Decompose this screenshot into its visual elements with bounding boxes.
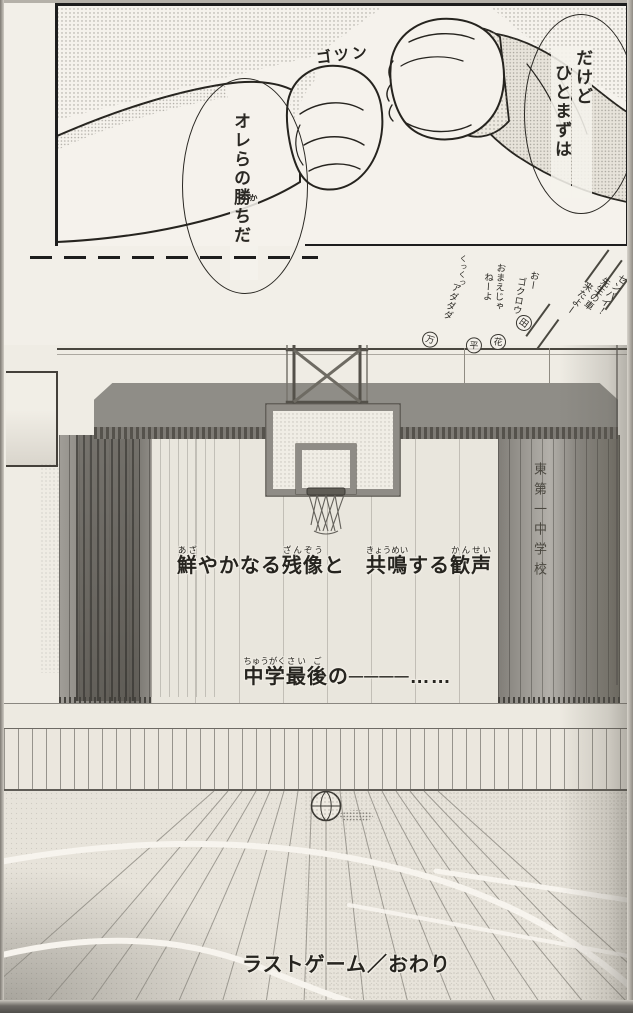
panel-border-dashed <box>30 256 318 259</box>
manga-page: 東第一中学校 鮮あざやかなる残像ざんぞうと 共鳴きょうめいする歓声かんせい 中学… <box>0 0 633 1013</box>
page-edge-right <box>627 0 633 1013</box>
hoop-truss <box>287 345 367 407</box>
caption-afterimage: 鮮あざやかなる残像ざんぞうと 共鳴きょうめいする歓声かんせい <box>18 545 633 578</box>
chatter-laugh: くっくっ <box>457 254 467 286</box>
speech-bubble-right-text: だけどひとまずは <box>550 48 593 198</box>
court-lines <box>4 844 629 1003</box>
page-edge-bottom <box>0 1000 633 1013</box>
chatter-senpai: センパイ！先生の車来たよー 田 <box>520 241 629 358</box>
panel-border-top <box>55 3 629 6</box>
page-curl-shading <box>559 345 629 1003</box>
speech-bubble-left-text: オレらの勝かちだ <box>230 112 258 280</box>
right-fist <box>387 19 504 140</box>
panel-border-bottom <box>305 244 629 246</box>
ending-caption: ラストゲーム／おわり <box>30 948 633 977</box>
caption-final: 中学ちゅうがく最さい後ごの────…… <box>31 656 633 689</box>
chatter-adada: アダダダ 万 <box>424 278 461 340</box>
chatter-omae: くっくっ おまえじゃねーよ 平 <box>462 261 505 343</box>
basket-rim-net <box>307 488 345 534</box>
backboard <box>266 404 400 496</box>
panel-border-left <box>55 3 58 246</box>
